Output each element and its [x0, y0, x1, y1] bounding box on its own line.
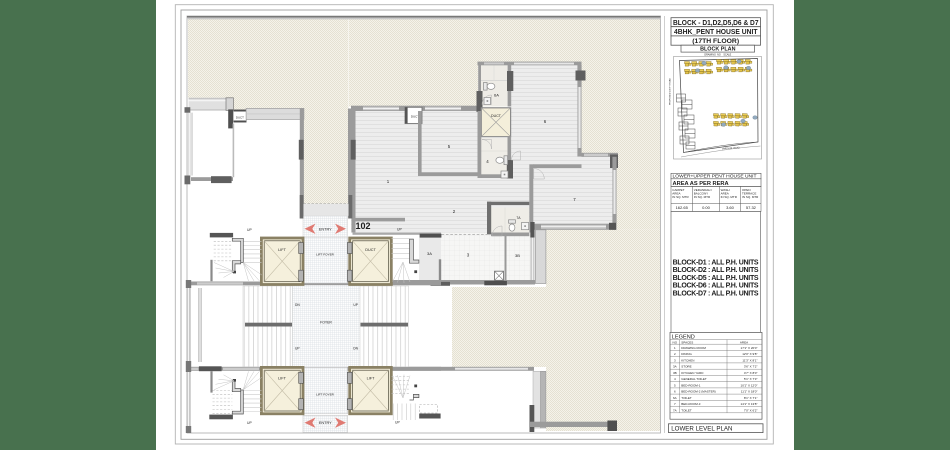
svg-text:UP: UP	[247, 228, 252, 232]
svg-text:BLOCK-D1 : ALL P.H. UNITS: BLOCK-D1 : ALL P.H. UNITS	[673, 259, 759, 266]
svg-text:BLOCK-D7 : ALL P.H. UNITS: BLOCK-D7 : ALL P.H. UNITS	[673, 291, 759, 298]
svg-text:4BHK_PENT HOUSE UNIT: 4BHK_PENT HOUSE UNIT	[674, 29, 758, 36]
svg-text:IN SQ. MTR: IN SQ. MTR	[672, 195, 689, 199]
svg-text:KITCHEN YARD: KITCHEN YARD	[681, 371, 704, 375]
svg-text:LIFT FOYER: LIFT FOYER	[316, 393, 335, 397]
svg-text:7A: 7A	[516, 216, 521, 220]
svg-text:BLOCK PLAN: BLOCK PLAN	[700, 47, 735, 53]
svg-text:BED-ROOM-2 (MASTER): BED-ROOM-2 (MASTER)	[681, 390, 716, 394]
svg-text:4'7" X 8'0": 4'7" X 8'0"	[744, 371, 758, 375]
svg-text:TOILET: TOILET	[681, 408, 692, 412]
svg-text:GENERAL TOILET: GENERAL TOILET	[681, 377, 707, 381]
svg-text:KITCHEN: KITCHEN	[681, 358, 694, 362]
svg-text:DRAWING NO SCALE: DRAWING NO SCALE	[704, 53, 731, 56]
svg-text:NO: NO	[673, 340, 678, 344]
svg-text:ENTRY: ENTRY	[319, 421, 332, 425]
svg-text:ENTRY: ENTRY	[319, 227, 332, 231]
svg-text:BED-ROOM-1: BED-ROOM-1	[681, 383, 700, 387]
svg-text:0.00: 0.00	[702, 205, 711, 210]
svg-text:LIFT FOYER: LIFT FOYER	[316, 253, 335, 257]
svg-text:6A: 6A	[673, 396, 677, 400]
svg-text:7A: 7A	[673, 408, 677, 412]
svg-text:8'1" X 7'1": 8'1" X 7'1"	[744, 396, 758, 400]
svg-text:FOYER: FOYER	[320, 321, 332, 325]
svg-text:3'6" X 7'2": 3'6" X 7'2"	[744, 365, 758, 369]
svg-text:7'0" X 6'2": 7'0" X 6'2"	[744, 408, 758, 412]
svg-text:5'1" X 7'3": 5'1" X 7'3"	[744, 377, 758, 381]
svg-text:3A: 3A	[427, 251, 432, 256]
svg-text:11'3" X 8'1": 11'3" X 8'1"	[742, 358, 757, 362]
svg-text:LIFT: LIFT	[278, 377, 286, 381]
svg-text:UP: UP	[397, 228, 402, 232]
svg-text:DN: DN	[295, 303, 300, 307]
svg-text:DUCT: DUCT	[491, 114, 502, 118]
svg-text:IN SQ. MTR: IN SQ. MTR	[742, 195, 759, 199]
svg-text:14'1" X 13'8": 14'1" X 13'8"	[741, 402, 758, 406]
svg-text:11'1" X 18'0": 11'1" X 18'0"	[741, 390, 758, 394]
svg-text:162.65: 162.65	[676, 205, 689, 210]
svg-text:DRAWING ROOM: DRAWING ROOM	[681, 346, 706, 350]
svg-text:LOWER+UPPER PENT HOUSE UNIT: LOWER+UPPER PENT HOUSE UNIT	[673, 174, 758, 179]
svg-text:10'1" X 12'0": 10'1" X 12'0"	[741, 383, 758, 387]
svg-text:IN SQ. MTR: IN SQ. MTR	[721, 195, 738, 199]
svg-text:DN: DN	[353, 346, 358, 350]
svg-text:6A: 6A	[494, 93, 499, 98]
svg-text:BLOCK-D5 : ALL P.H. UNITS: BLOCK-D5 : ALL P.H. UNITS	[673, 275, 759, 282]
svg-text:LIFT: LIFT	[367, 377, 375, 381]
svg-text:PROPOSED 100 FT ROAD: PROPOSED 100 FT ROAD	[668, 78, 671, 105]
svg-text:BLOCK-D2 : ALL P.H. UNITS: BLOCK-D2 : ALL P.H. UNITS	[673, 267, 759, 274]
svg-text:SPACES: SPACES	[681, 340, 693, 344]
svg-text:AREA AS PER RERA: AREA AS PER RERA	[673, 181, 729, 187]
svg-text:DUCT: DUCT	[365, 248, 376, 252]
svg-text:IN SQ. MTR: IN SQ. MTR	[694, 195, 711, 199]
svg-text:3B: 3B	[515, 253, 520, 258]
svg-text:TOILET: TOILET	[681, 396, 692, 400]
svg-text:UP: UP	[247, 421, 252, 425]
svg-text:3.60: 3.60	[726, 205, 735, 210]
svg-text:12'0" X 9'8": 12'0" X 9'8"	[742, 352, 757, 356]
svg-text:3B: 3B	[673, 371, 677, 375]
svg-text:BLOCK - D1,D2,D5,D6 & D7: BLOCK - D1,D2,D5,D6 & D7	[673, 20, 759, 27]
svg-text:BLOCK-D6 : ALL P.H. UNITS: BLOCK-D6 : ALL P.H. UNITS	[673, 283, 759, 290]
svg-text:3A: 3A	[673, 365, 677, 369]
svg-text:UP: UP	[295, 346, 300, 350]
svg-text:UP: UP	[395, 421, 400, 425]
svg-text:57.32: 57.32	[746, 205, 757, 210]
svg-text:102: 102	[356, 221, 371, 231]
svg-text:LOWER LEVEL PLAN: LOWER LEVEL PLAN	[671, 425, 732, 432]
svg-text:UP: UP	[353, 303, 358, 307]
svg-text:LIFT: LIFT	[278, 248, 286, 252]
svg-text:BED-ROOM-3: BED-ROOM-3	[681, 402, 700, 406]
svg-text:STORE: STORE	[681, 365, 691, 369]
svg-text:DUCT: DUCT	[236, 115, 244, 119]
svg-text:AREA: AREA	[740, 340, 748, 344]
svg-text:(17TH FLOOR): (17TH FLOOR)	[692, 38, 739, 45]
svg-text:DINING: DINING	[681, 352, 692, 356]
svg-text:17'1" X 20'0": 17'1" X 20'0"	[741, 346, 758, 350]
